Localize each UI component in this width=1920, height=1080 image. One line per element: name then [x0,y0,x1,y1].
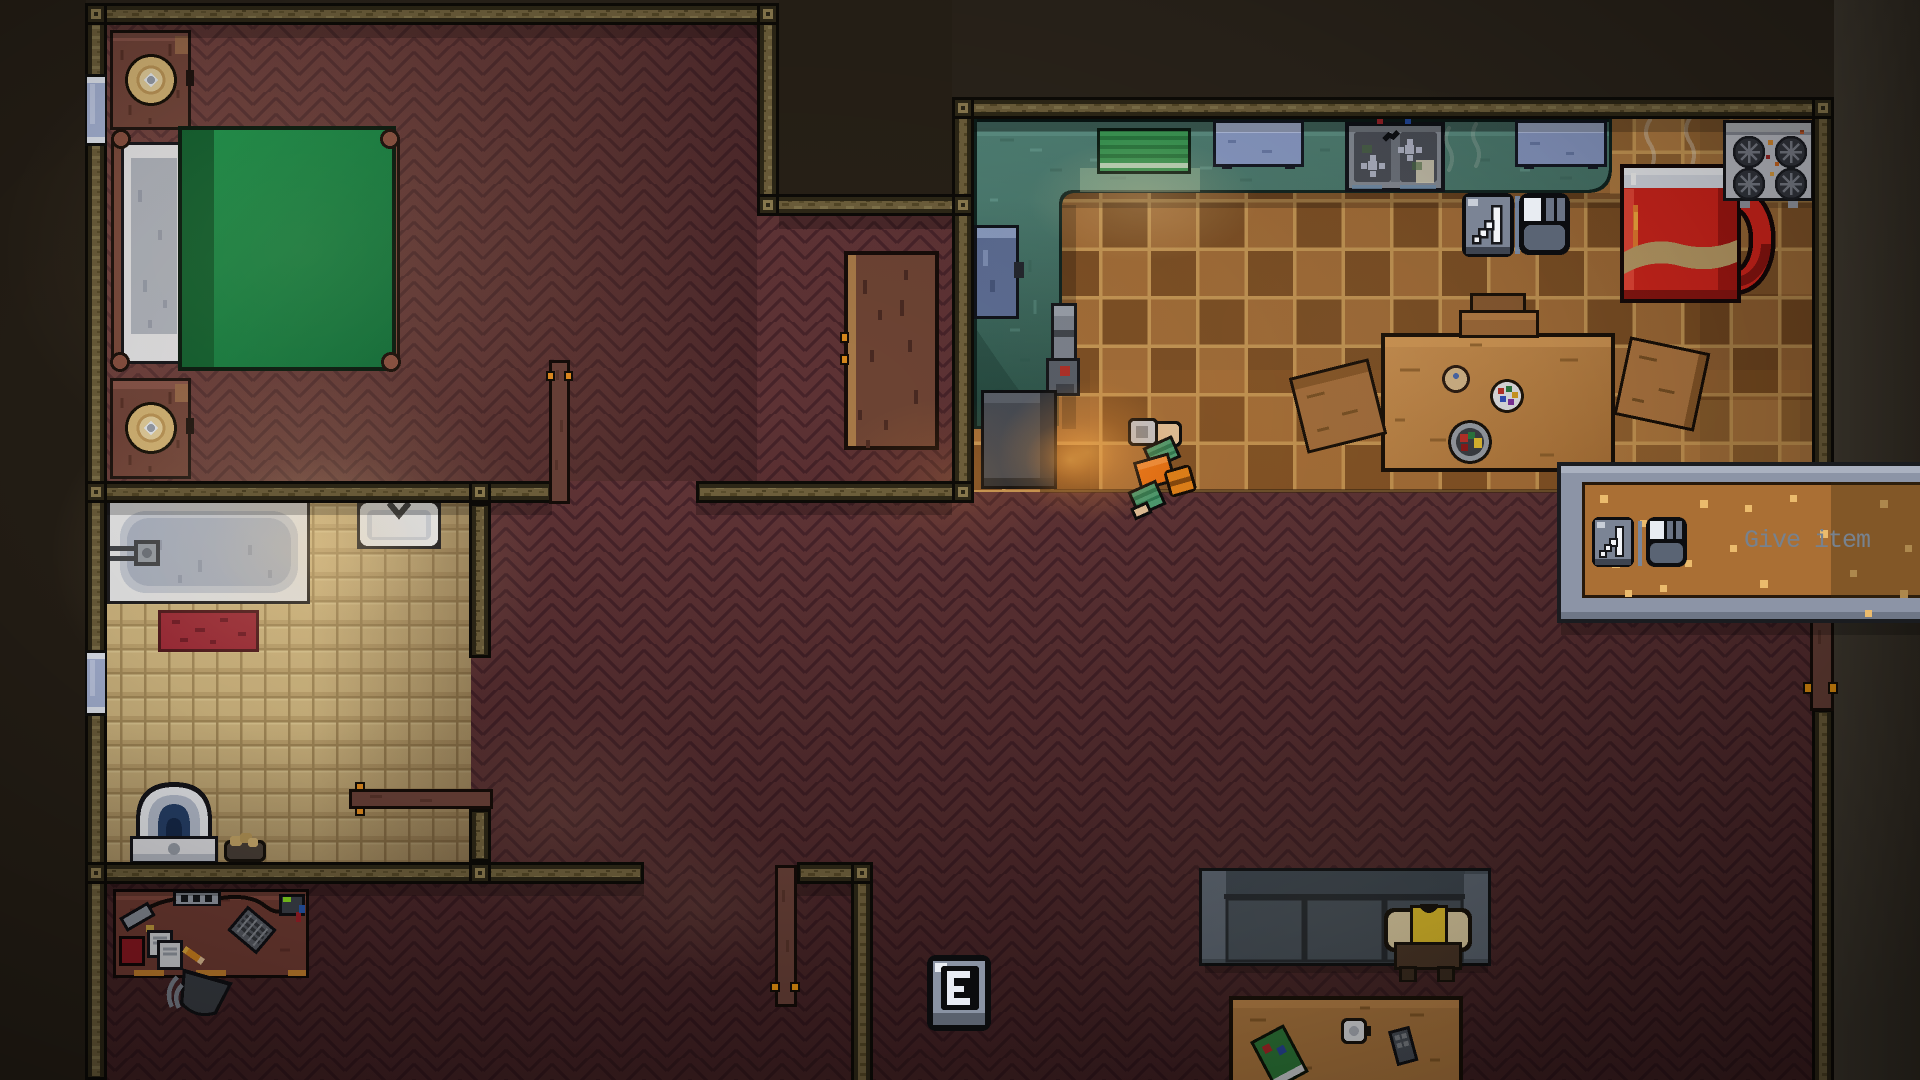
svg-text:Give item: Give item [1744,526,1870,555]
